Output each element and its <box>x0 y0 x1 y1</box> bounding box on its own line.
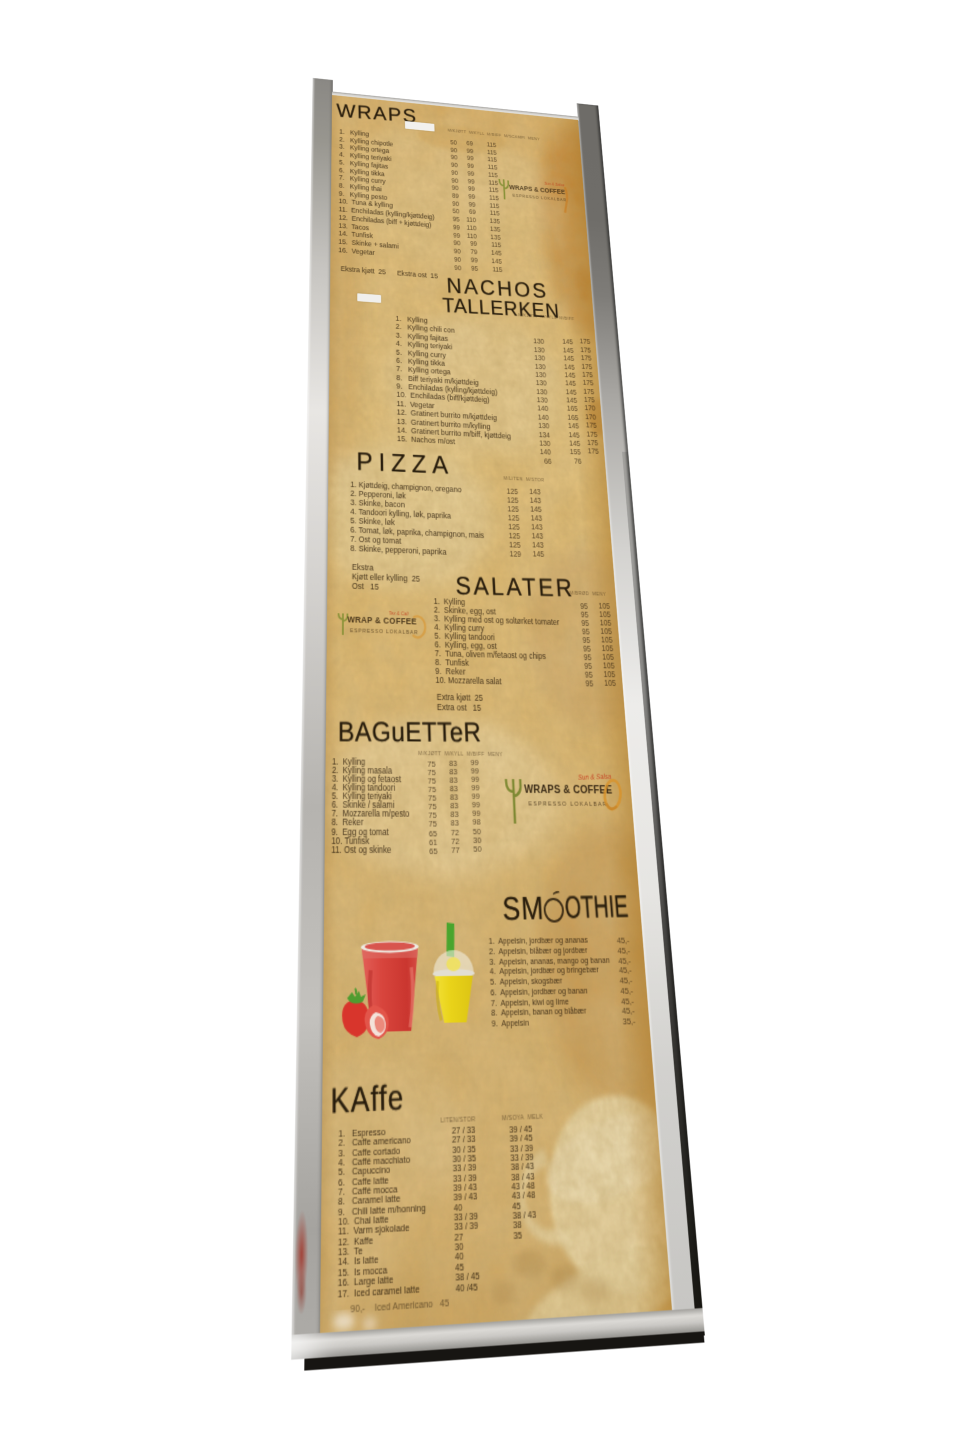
svg-text:Sun & Salsa: Sun & Salsa <box>578 773 612 783</box>
svg-text:WRAP & COFFEE: WRAP & COFFEE <box>347 616 417 627</box>
svg-text:ESPRESSO LOKALBAR: ESPRESSO LOKALBAR <box>528 800 608 808</box>
svg-text:Sun & Salsa: Sun & Salsa <box>544 182 564 188</box>
svg-text:ESPRESSO LOKALBAR: ESPRESSO LOKALBAR <box>350 627 419 636</box>
svg-text:Tex & Cali: Tex & Cali <box>389 611 409 617</box>
svg-text:WRAPS & COFFEE: WRAPS & COFFEE <box>524 783 613 797</box>
